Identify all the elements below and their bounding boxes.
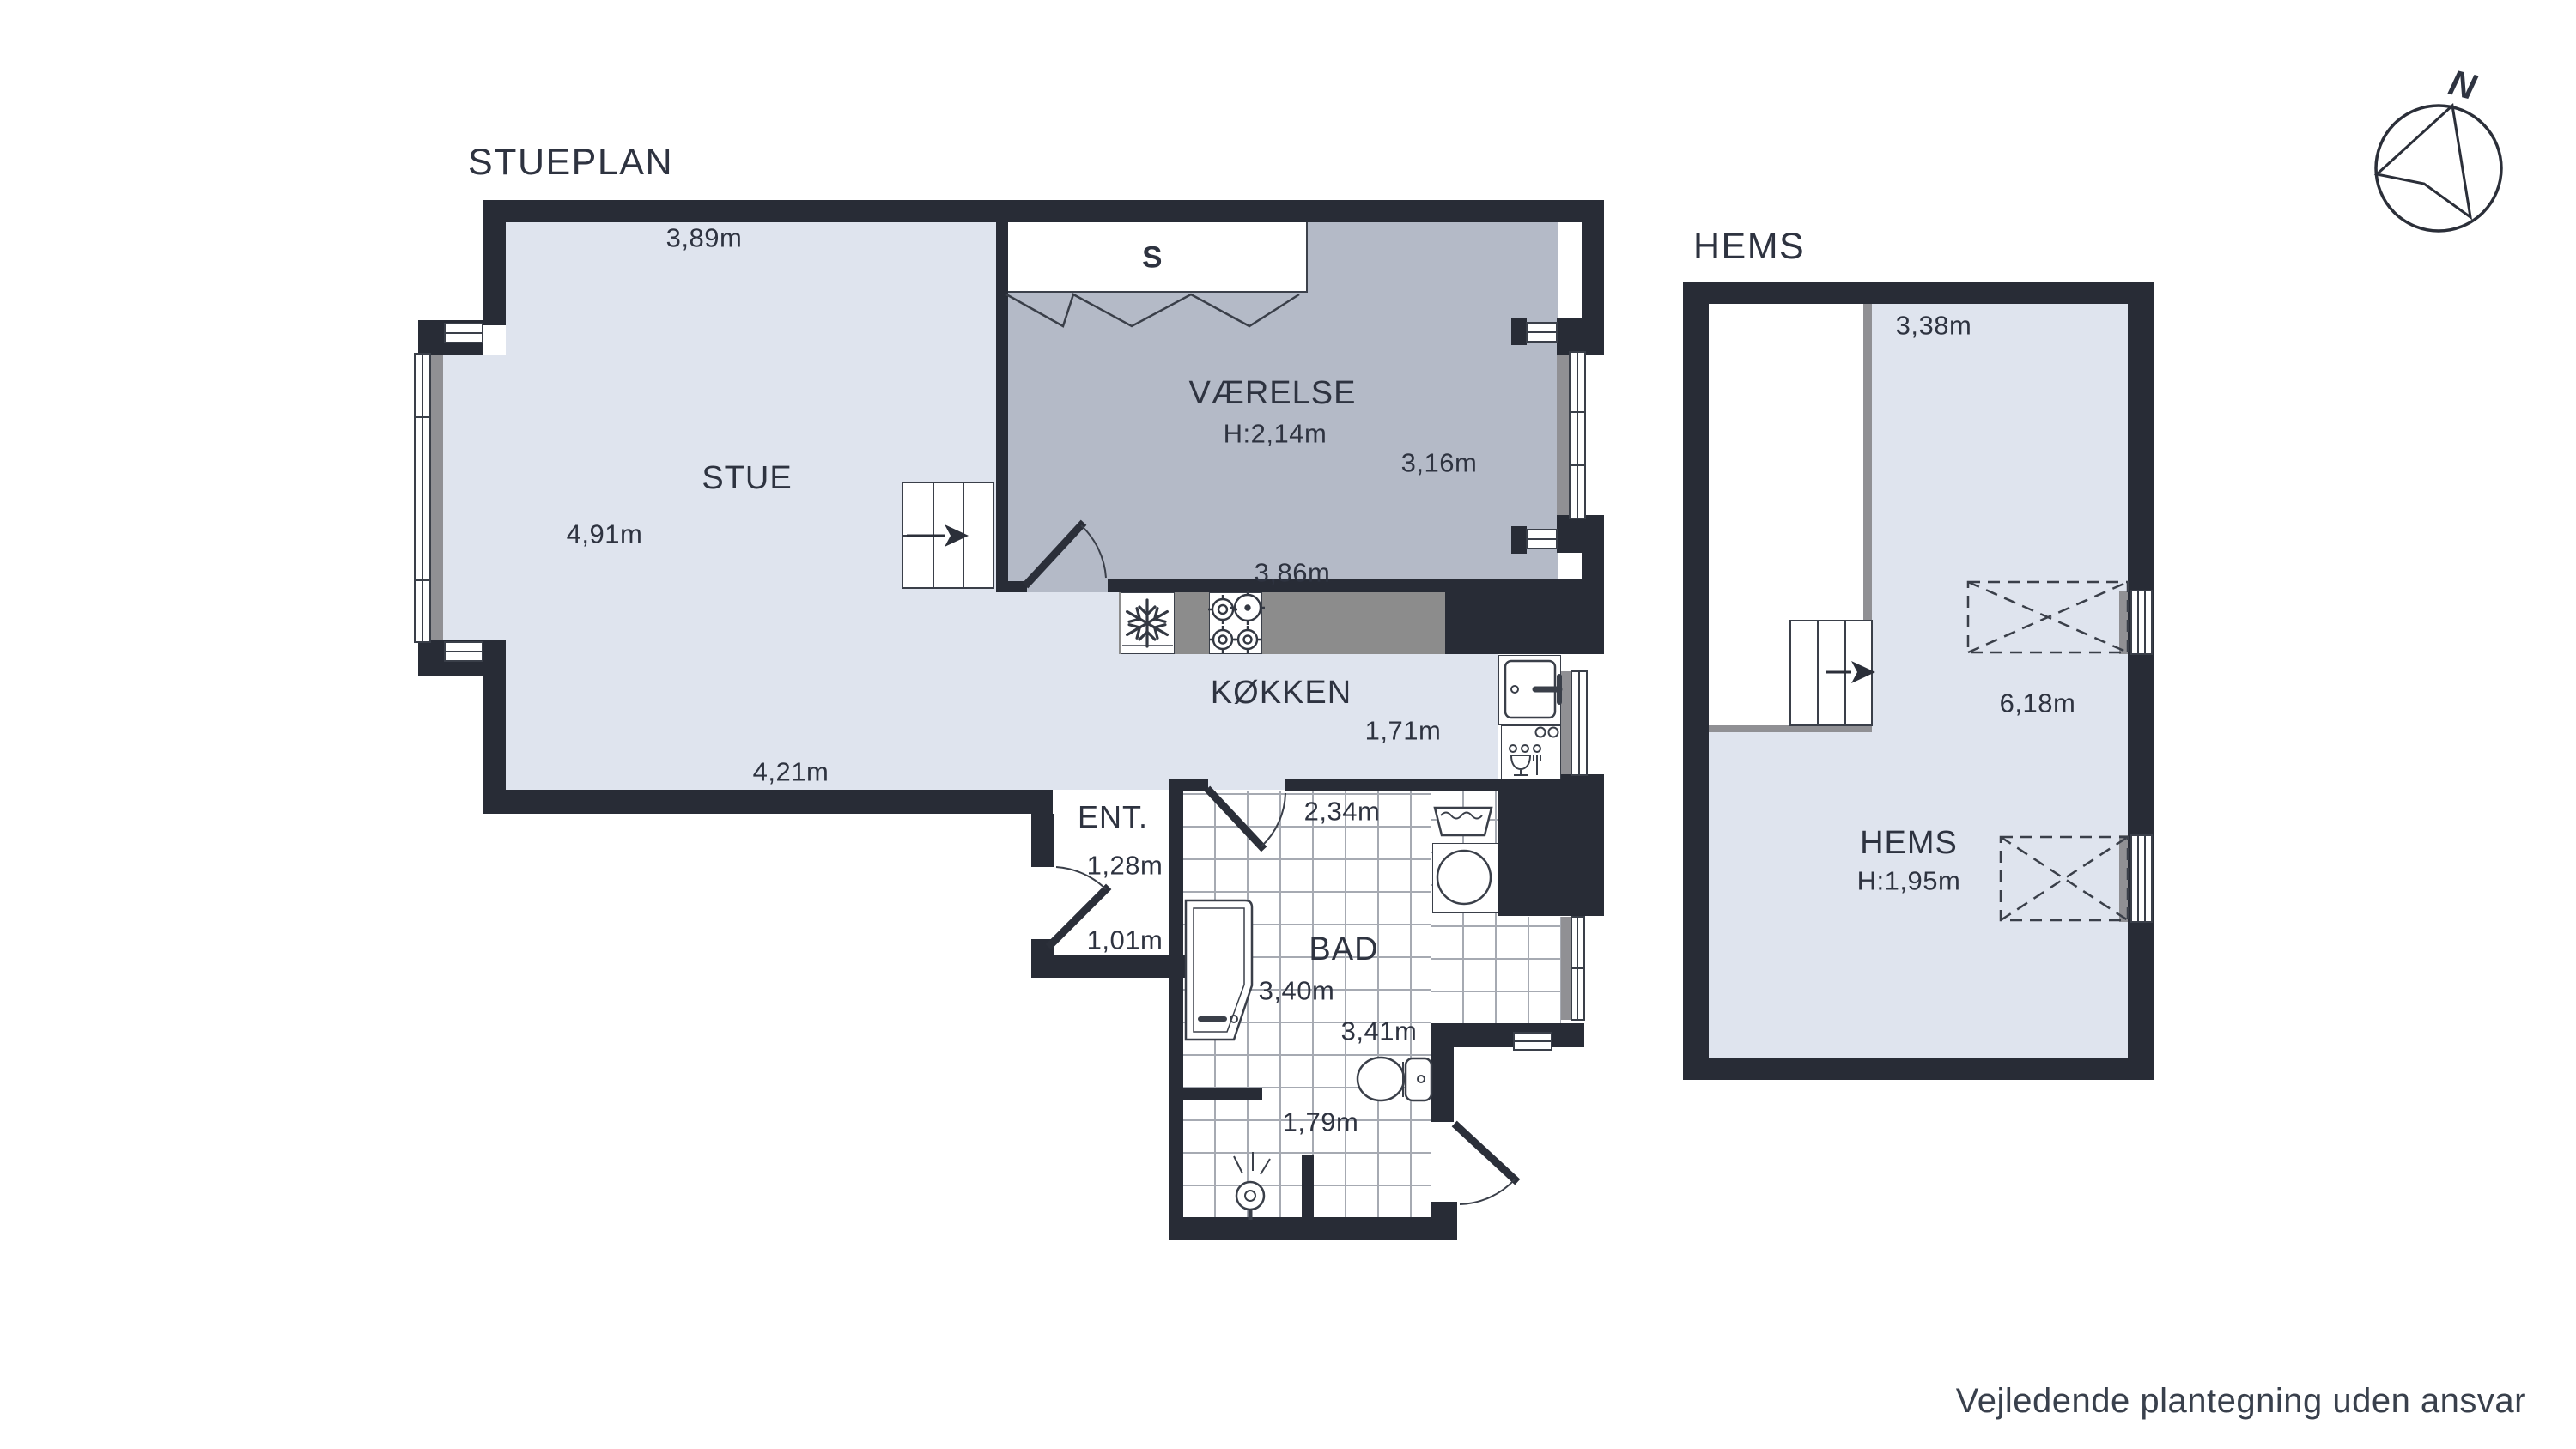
dim-hems-ceiling: H:1,95m — [1857, 868, 1961, 894]
plan-linework — [0, 0, 2576, 1449]
room-label-koekken: KØKKEN — [1211, 676, 1352, 709]
dim-vaerelse-width: 3,86m — [1255, 560, 1331, 586]
door-bad — [1210, 791, 1285, 846]
laundry-tub-icon — [1435, 808, 1492, 835]
skylight-cross-icon — [1968, 582, 2128, 920]
dim-ent-upper: 1,28m — [1087, 852, 1163, 879]
disclaimer-text: Vejledende plantegning uden ansvar — [1956, 1382, 2526, 1421]
dim-bad-mid: 3,40m — [1259, 978, 1335, 1004]
washing-machine-icon — [1437, 851, 1491, 904]
dim-vaerelse-ceiling: H:2,14m — [1224, 421, 1327, 447]
compass-north-icon — [2376, 106, 2501, 231]
freezer-snowflake-icon — [1123, 600, 1171, 646]
dim-hems-depth: 6,18m — [2000, 690, 2076, 717]
floorplan-canvas: STUEPLAN HEMS 3,89m S VÆRELSE H:2,14m 3,… — [0, 0, 2576, 1449]
cooktop-burners-icon — [1208, 591, 1265, 653]
room-label-ent: ENT. — [1078, 802, 1148, 833]
shower-stall-icon — [1186, 900, 1252, 1040]
dim-ent-lower: 1,01m — [1087, 927, 1163, 954]
shower-head-icon — [1234, 1152, 1270, 1220]
kitchen-sink-icon — [1505, 661, 1559, 718]
room-label-vaerelse: VÆRELSE — [1189, 377, 1357, 409]
dim-bad-lower: 3,41m — [1341, 1018, 1418, 1045]
plan-title: STUEPLAN — [468, 144, 673, 181]
dim-stue-bottom: 4,21m — [753, 759, 829, 785]
dim-hems-top: 3,38m — [1896, 312, 1972, 339]
room-label-stue: STUE — [702, 462, 792, 494]
wardrobe-rail-zigzag — [1006, 294, 1299, 326]
room-label-bad: BAD — [1309, 933, 1378, 966]
dim-vaerelse-depth: 3,16m — [1401, 450, 1478, 476]
door-exit — [1457, 1126, 1515, 1204]
door-vaerelse — [1028, 525, 1106, 583]
closet-label: S — [1142, 243, 1163, 273]
dim-bad-bottom: 1,79m — [1283, 1109, 1359, 1136]
dishwasher-icon — [1510, 728, 1558, 776]
dim-bad-top: 2,34m — [1304, 798, 1381, 825]
dim-stue-depth: 4,91m — [567, 521, 643, 548]
room-label-hems: HEMS — [1860, 827, 1958, 859]
hems-title: HEMS — [1693, 228, 1805, 265]
dim-stue-top: 3,89m — [666, 225, 743, 252]
dim-koekken-depth: 1,71m — [1365, 718, 1442, 744]
toilet-icon — [1358, 1058, 1431, 1100]
